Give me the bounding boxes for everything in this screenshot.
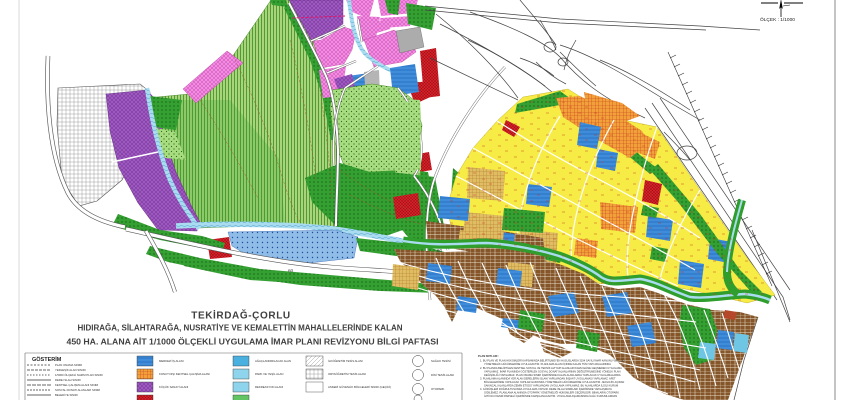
- svg-text:ÖLÇEK : 1/1000: ÖLÇEK : 1/1000: [760, 16, 795, 23]
- svg-text:PLAN ONAMA SINIRI: PLAN ONAMA SINIRI: [55, 363, 82, 367]
- svg-text:MERKEZİ İŞ ALANI: MERKEZİ İŞ ALANI: [159, 358, 184, 363]
- svg-text:DERE ISLAH SINIRI: DERE ISLAH SINIRI: [55, 378, 81, 382]
- svg-text:HIDIRAĞA, SİLAHTARAĞA, NUSRATİ: HIDIRAĞA, SİLAHTARAĞA, NUSRATİYE VE KEMA…: [77, 324, 402, 333]
- svg-text:450 HA. ALANA AİT 1/1000 ÖLÇEK: 450 HA. ALANA AİT 1/1000 ÖLÇEKLİ UYGULAM…: [67, 337, 439, 347]
- svg-text:AĞAÇLANDIRILACAK ALAN: AĞAÇLANDIRILACAK ALAN: [255, 358, 291, 363]
- svg-text:60: 60: [288, 268, 294, 273]
- svg-text:SOSYAL DONATI ALANLARI SINIRI: SOSYAL DONATI ALANLARI SINIRI: [55, 388, 100, 392]
- svg-text:TEKİRDAĞ-ÇORLU: TEKİRDAĞ-ÇORLU: [191, 309, 291, 322]
- svg-text:YERLEŞİK ALAN SINIRI: YERLEŞİK ALAN SINIRI: [55, 367, 86, 372]
- svg-text:İLKÖĞRETİM TESİS ALANI: İLKÖĞRETİM TESİS ALANI: [328, 358, 363, 363]
- svg-text:KÜÇÜK SANAYİ ALANI: KÜÇÜK SANAYİ ALANI: [159, 384, 189, 389]
- svg-text:KENTSEL ÇALIŞMA ALANI SINIRI: KENTSEL ÇALIŞMA ALANI SINIRI: [55, 383, 98, 387]
- svg-text:1/5000 ÖLÇEKLİ NAZIM PLAN SINI: 1/5000 ÖLÇEKLİ NAZIM PLAN SINIRI: [55, 372, 103, 377]
- svg-text:OTOPARK: OTOPARK: [431, 387, 445, 391]
- svg-text:PLAN NOTLARI :: PLAN NOTLARI :: [478, 354, 499, 358]
- svg-text:SAĞLIK TESİSİ: SAĞLIK TESİSİ: [431, 358, 451, 363]
- svg-text:GÖSTERİM: GÖSTERİM: [32, 356, 62, 363]
- svg-text:BELEDİYE SINIRI: BELEDİYE SINIRI: [55, 392, 78, 397]
- svg-text:PARK VE YEŞİL ALAN: PARK VE YEŞİL ALAN: [255, 371, 283, 376]
- svg-text:ORTAÖĞRETİM TESİS ALANI: ORTAÖĞRETİM TESİS ALANI: [328, 371, 366, 376]
- svg-text:DİNİ TESİS ALANI: DİNİ TESİS ALANI: [431, 372, 454, 377]
- svg-text:REKREASYON ALANI: REKREASYON ALANI: [255, 385, 283, 389]
- svg-text:ASKERİ GÜVENLİK BÖLGELERİ SINI: ASKERİ GÜVENLİK BÖLGELERİ SINIRI (GEÇİCİ…: [328, 384, 391, 389]
- svg-text:KONUT DIŞI KENTSEL ÇALIŞMA ALA: KONUT DIŞI KENTSEL ÇALIŞMA ALANI: [159, 372, 210, 376]
- svg-text:60: 60: [437, 248, 443, 253]
